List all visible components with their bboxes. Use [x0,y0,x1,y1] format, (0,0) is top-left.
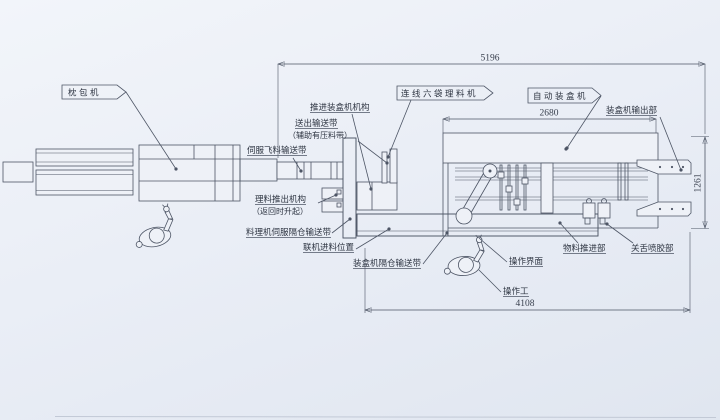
dim-text-1261: 1261 [694,173,704,192]
label-online-feed-position: 联机进料位置 [303,242,355,253]
dim-text-4108: 4108 [516,299,535,309]
dimension-height: 1261 [691,137,709,229]
operator-figure-left [129,203,177,250]
flag-auto-cartoner: 自动装盒机 [528,88,601,103]
label-outfeed-belt: 送出输送带 [295,118,338,129]
label-cartoner-output: 装盒机输出部 [606,105,658,116]
label-auto-cartoner: 自动装盒机 [533,91,588,102]
crank-arm [456,164,497,224]
label-operator: 操作工 [503,286,529,297]
flag-six-bag-machine: 连线六袋理料机 [397,86,493,100]
label-pushout-note: （返回时升起） [252,206,308,216]
scan-edge-line [55,417,716,418]
label-cartoner-compartment-conveyor: 装盒机隔仓输送带 [353,258,422,269]
label-tongue-glue-section: 关舌喷胶部 [631,243,674,254]
label-six-bag-machine: 连线六袋理料机 [401,89,478,100]
output-arm-lower [637,202,691,216]
pillow-packing-machine [3,145,277,201]
label-servo-fly-conveyor: 伺服飞料输送带 [247,145,307,156]
label-outfeed-belt-note: （辅助有压料带） [288,130,352,140]
label-material-push-section: 物料推进部 [563,243,606,254]
dim-text-2680: 2680 [540,109,559,119]
label-push-into-cartoner: 推进装盒机机构 [310,102,370,113]
glue-unit [583,199,610,225]
flag-pillow-machine: 枕包机 [62,85,126,99]
label-servo-compartment-conveyor: 料理机伺服隔仓输送带 [246,227,332,238]
label-operation-interface: 操作界面 [509,256,544,267]
dim-text-5196: 5196 [481,54,500,64]
label-pushout-mechanism: 理料推出机构 [255,194,306,205]
output-arm-upper [637,160,691,174]
technical-drawing-page: 5196 2680 1261 4108 枕 [0,0,720,420]
six-bag-arranging-machine [322,138,397,238]
drawing-canvas: 5196 2680 1261 4108 枕 [0,0,720,420]
servo-fly-conveyor [277,162,343,179]
label-pillow-machine: 枕包机 [68,88,101,99]
